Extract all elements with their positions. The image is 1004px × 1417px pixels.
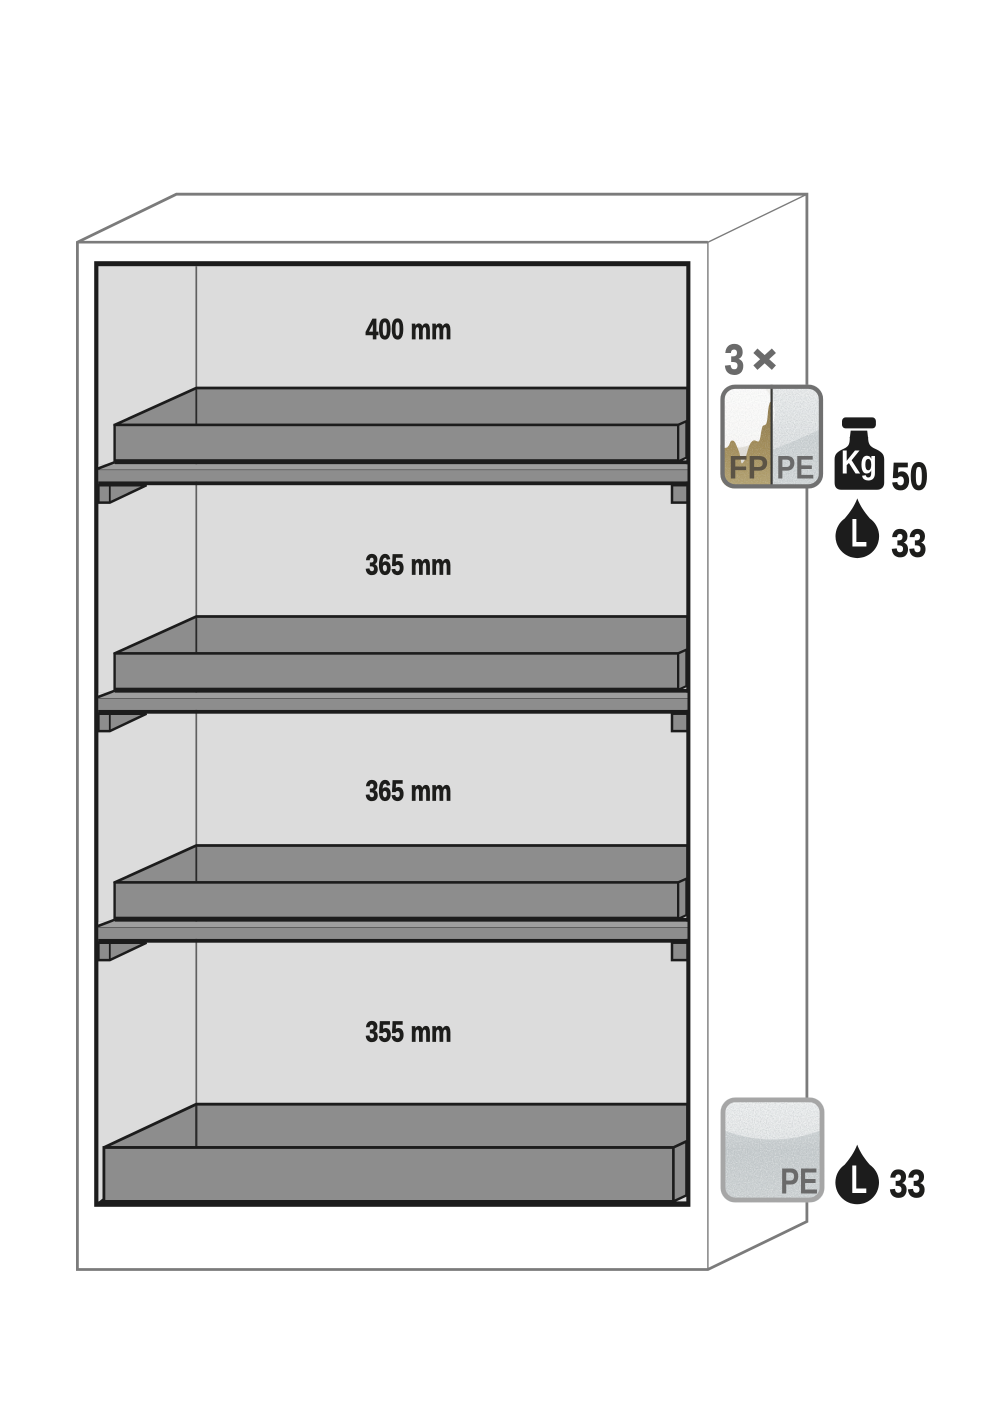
svg-text:PE: PE: [780, 1162, 818, 1202]
svg-text:L: L: [851, 512, 868, 556]
svg-text:L: L: [851, 1158, 868, 1202]
svg-text:33: 33: [891, 522, 926, 565]
svg-text:50: 50: [892, 456, 929, 499]
svg-text:FP: FP: [729, 449, 769, 485]
svg-text:400 mm: 400 mm: [366, 314, 452, 346]
svg-text:PE: PE: [776, 449, 814, 485]
svg-text:365 mm: 365 mm: [366, 776, 452, 808]
svg-text:355 mm: 355 mm: [366, 1017, 452, 1049]
svg-text:33: 33: [890, 1163, 926, 1206]
svg-text:Kg: Kg: [841, 444, 877, 481]
svg-text:3: 3: [725, 336, 745, 384]
svg-text:365 mm: 365 mm: [366, 549, 452, 581]
